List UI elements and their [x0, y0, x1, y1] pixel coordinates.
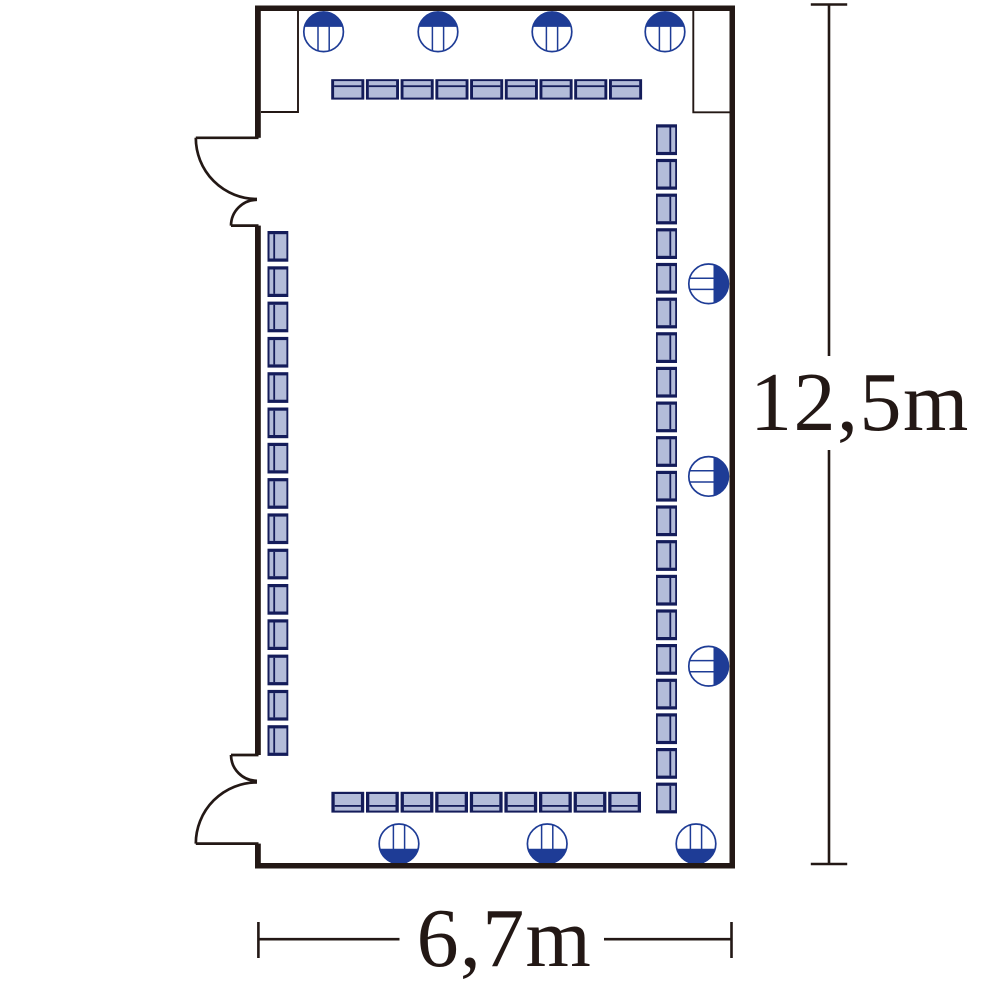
- svg-text:12,5m: 12,5m: [750, 356, 970, 449]
- svg-text:6,7m: 6,7m: [417, 892, 593, 985]
